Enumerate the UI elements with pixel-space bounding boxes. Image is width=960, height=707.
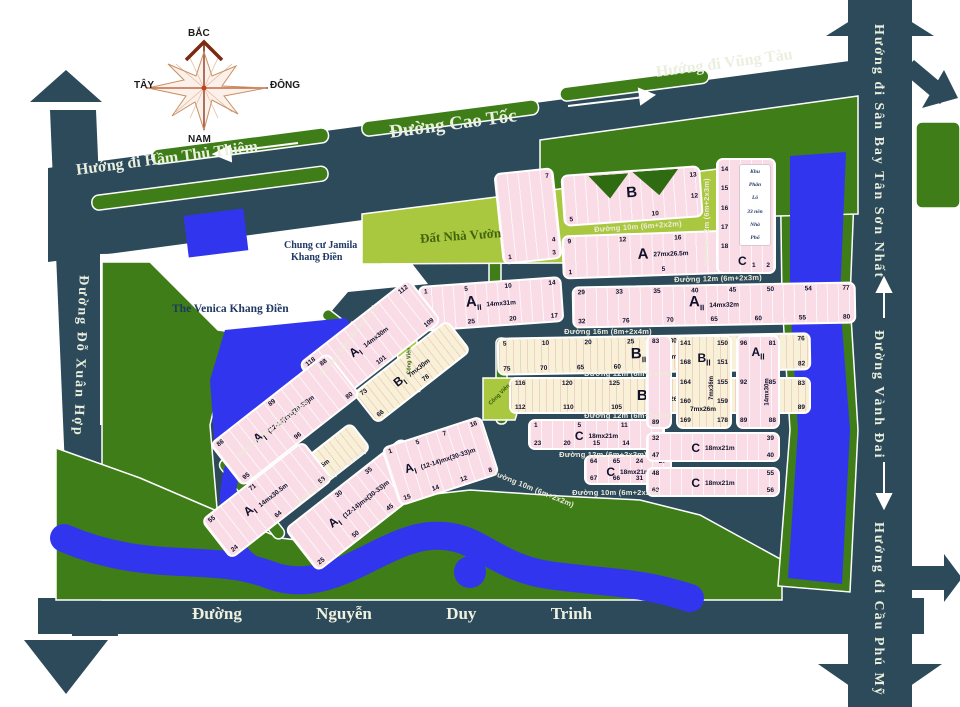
- river-bulge: [454, 556, 486, 588]
- list-item: Đường: [192, 604, 242, 624]
- list-item: 150: [717, 340, 728, 347]
- label-san-bay: Hướng đi Sân Bay Tân Sơn Nhất: [870, 24, 886, 286]
- street-s4: Đường 12m (6m+2x3m): [528, 369, 728, 378]
- list-item: 18: [721, 243, 728, 250]
- list-item: Lô: [752, 195, 758, 201]
- block-dim: 14mx32m: [709, 301, 739, 309]
- list-item: Nhà: [750, 222, 760, 228]
- street-s7: Đường 10m (6m+2x2m): [556, 488, 676, 497]
- list-item: 16: [721, 205, 728, 212]
- list-item: 3: [552, 249, 556, 256]
- list-item: 7: [545, 173, 549, 180]
- list-item: 83: [652, 338, 659, 345]
- list-item: 32: [578, 318, 585, 325]
- list-item: 20: [584, 339, 591, 346]
- list-item: 76: [797, 335, 804, 342]
- list-item: 88: [769, 417, 776, 424]
- block-letter: AII: [689, 295, 705, 315]
- street-s3: Đường 16m (8m+2x4m): [508, 327, 708, 336]
- list-item: Nguyễn: [316, 604, 372, 624]
- list-item: 4: [552, 236, 556, 243]
- list-item: 76: [622, 317, 629, 324]
- list-item: 83: [798, 380, 805, 387]
- list-item: 10: [651, 210, 659, 217]
- label-nguyen-duy-trinh: ĐườngNguyễnDuyTrinh: [192, 604, 592, 624]
- list-item: 155: [717, 379, 728, 386]
- label-vanh-dai: Đường Vành Đai: [870, 330, 886, 465]
- list-item: Trinh: [551, 604, 592, 624]
- list-item: 60: [755, 315, 762, 322]
- label-jamila-line1: Chung cư Jamila: [284, 240, 357, 251]
- list-item: Khu: [750, 169, 760, 175]
- block-b-strip: 74 13: [493, 167, 562, 265]
- khu-phan-lo-box: KhuPhânLô33 nềnNhàPhố: [739, 164, 771, 246]
- block-letter: A: [637, 248, 648, 262]
- block-dim-vertical: 7mx36m: [709, 376, 715, 400]
- list-item: Phố: [750, 235, 759, 241]
- list-item: 1: [508, 254, 512, 261]
- list-item: 125: [609, 380, 620, 387]
- label-venica: The Venica Khang Điền: [172, 303, 289, 315]
- block-letter: C: [691, 441, 700, 455]
- list-item: 5: [569, 216, 573, 223]
- list-item: 159: [717, 398, 728, 405]
- pond-highway: [184, 209, 249, 258]
- list-item: 1: [752, 262, 756, 269]
- list-item: 120: [562, 380, 573, 387]
- list-item: 64: [590, 458, 597, 465]
- block-letter: AII: [751, 345, 764, 364]
- block-letter: B: [626, 185, 638, 200]
- list-item: 5: [577, 422, 581, 429]
- block-dim: 18mx21m: [705, 445, 735, 452]
- compass-north: BẮC: [188, 28, 210, 39]
- compass-south: NAM: [188, 134, 211, 145]
- block-letter: C: [575, 429, 584, 443]
- land-plot-map: BẮC NAM TÂY ĐÔNG Hướng đi Hầm Thủ Thiêm …: [0, 0, 960, 707]
- list-item: 12: [691, 192, 699, 199]
- block-letter: C: [691, 476, 700, 490]
- compass-east: ĐÔNG: [270, 80, 300, 91]
- green-top-right-corner: [916, 122, 960, 208]
- list-item: 65: [711, 316, 718, 323]
- list-item: Phân: [749, 182, 761, 188]
- list-item: 2: [766, 262, 770, 269]
- block-dim-vertical: 14mx30m: [765, 378, 771, 405]
- block-letter: BII: [697, 351, 710, 370]
- list-item: 17: [550, 312, 558, 319]
- list-item: 11: [621, 422, 628, 429]
- list-item: 141: [680, 340, 691, 347]
- list-item: 14: [721, 166, 728, 173]
- block-dim: (12-14)mx(30-33)m: [420, 446, 476, 470]
- block-dim: 18mx21m: [705, 480, 735, 487]
- list-item: 14: [431, 484, 440, 493]
- block-dim: 27mx26.5m: [653, 250, 688, 258]
- label-cau-phu-my: Hướng đi Cầu Phú Mỹ: [870, 522, 886, 702]
- block-letter: C: [606, 465, 615, 479]
- list-item: 5: [662, 266, 666, 273]
- list-item: 164: [680, 379, 691, 386]
- list-item: 1: [568, 269, 572, 276]
- list-item: 116: [515, 380, 526, 387]
- list-item: 65: [613, 458, 620, 465]
- block-dim: 14mx30m: [362, 326, 390, 350]
- block-letter: BII: [631, 347, 647, 367]
- list-item: 25: [468, 318, 476, 325]
- list-item: 1: [534, 422, 538, 429]
- list-item: 13: [689, 171, 697, 178]
- list-item: 12: [459, 475, 468, 484]
- block-dim: 18mx21m: [589, 433, 619, 440]
- block-letter: C: [738, 254, 747, 268]
- list-item: Duy: [446, 604, 476, 624]
- list-item: 5: [503, 341, 507, 348]
- compass-west: TÂY: [134, 80, 154, 91]
- block-aii-right: 2933354045505477 AII 14mx32m 32767065605…: [572, 282, 857, 329]
- street-s5: Đường 12m (6m+2x3m): [528, 411, 728, 420]
- list-item: 55: [799, 314, 806, 321]
- block-letter: AI: [403, 460, 419, 482]
- block-dim: 14mx31m: [486, 299, 516, 308]
- list-item: 89: [652, 419, 659, 426]
- list-item: 92: [740, 379, 747, 386]
- list-item: 10: [542, 340, 549, 347]
- block-c1: 1511 C 18mx21m 2320151412: [528, 419, 665, 450]
- street-sv1: Đường 12m (6m+2x3m): [702, 168, 711, 276]
- list-item: 15: [721, 185, 728, 192]
- list-item: 33 nền: [747, 209, 762, 215]
- list-item: 17: [721, 224, 728, 231]
- block-c-top: 1415161718 KhuPhânLô33 nềnNhàPhố C 12: [716, 158, 776, 274]
- label-cong-vien-2: Công Viên: [407, 347, 413, 374]
- map-graphics: [0, 0, 960, 707]
- list-item: 24: [636, 458, 643, 465]
- list-item: 89: [740, 417, 747, 424]
- list-item: 20: [509, 315, 517, 322]
- list-item: 15: [403, 493, 412, 502]
- block-aii-right2: 969289 818588 AII 14mx30m: [736, 335, 780, 429]
- label-jamila-line2: Khang Điền: [291, 252, 342, 263]
- street-s6: Đường 12m (6m+2x3m): [528, 450, 678, 459]
- list-item: 70: [666, 317, 673, 324]
- list-item: 80: [843, 314, 850, 321]
- list-item: 160: [680, 398, 691, 405]
- block-b-top: 1312 B 510: [560, 165, 703, 227]
- block-letter: AII: [465, 295, 482, 316]
